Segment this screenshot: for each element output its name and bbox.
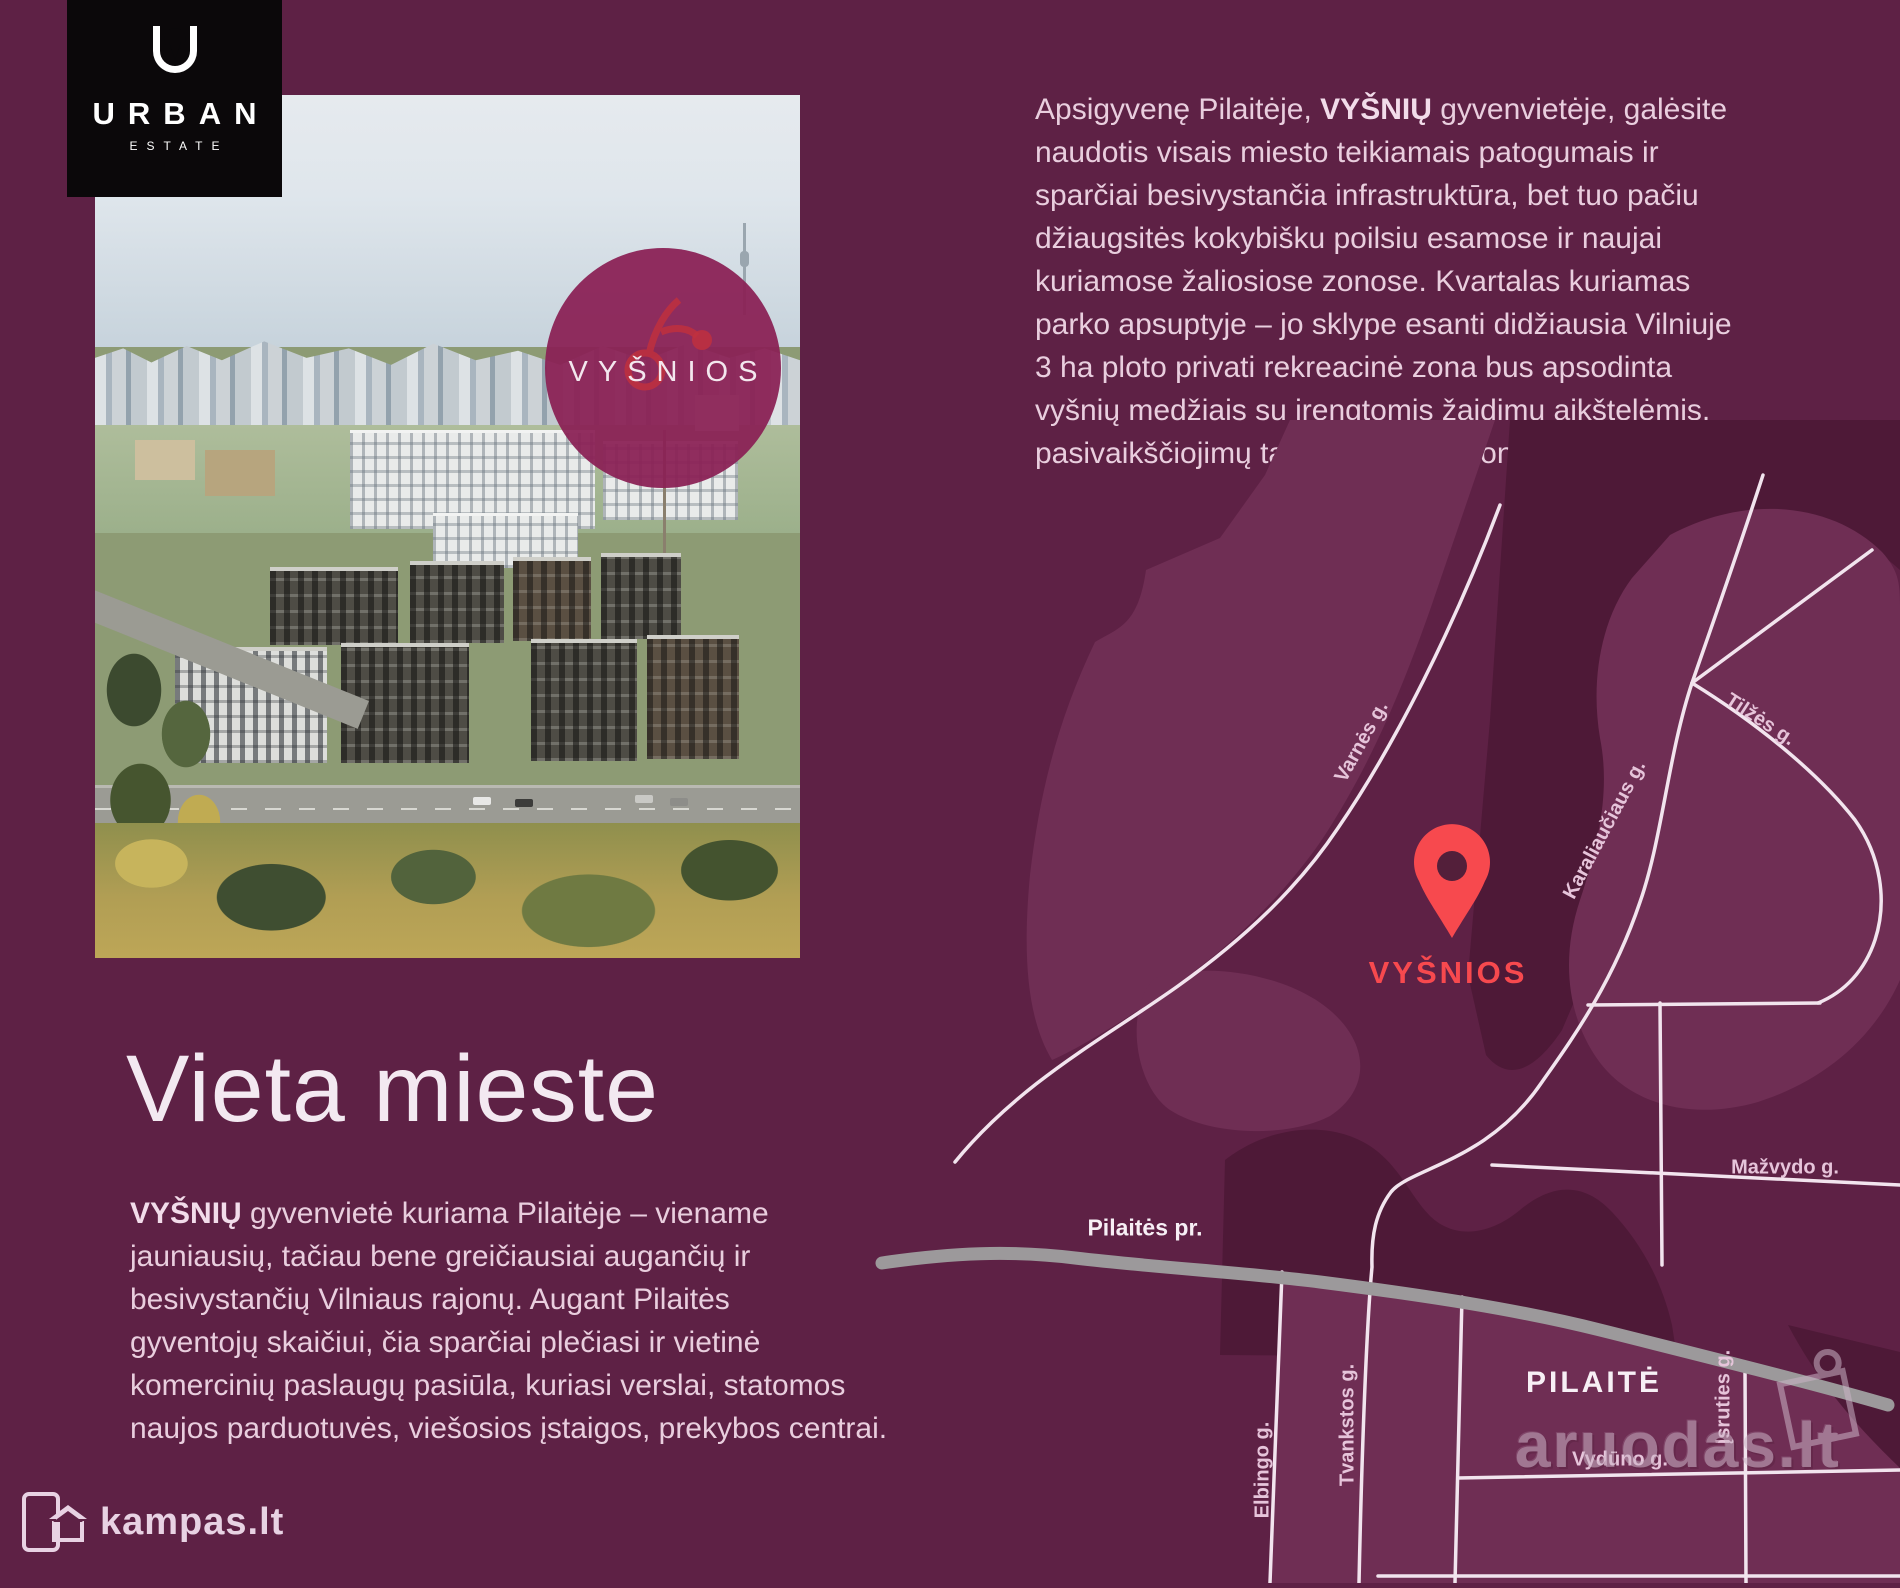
logo-line1: URBAN xyxy=(93,96,270,132)
street-label-tvankstos: Tvankstos g. xyxy=(1337,1364,1360,1486)
logo-line2: ESTATE xyxy=(130,139,229,153)
aruodas-watermark[interactable]: aruodas.lt xyxy=(1515,1408,1841,1482)
street-label-elbingo: Elbingo g. xyxy=(1252,1422,1275,1519)
kampas-house-icon xyxy=(52,1521,84,1542)
quarter-building xyxy=(410,561,504,643)
quarter-building xyxy=(531,639,637,761)
street-label-mazvydo: Mažvydo g. xyxy=(1731,1157,1839,1180)
district-label: PILAITĖ xyxy=(1526,1366,1662,1400)
car xyxy=(515,799,533,807)
intro-line1-bold: VYŠNIŲ xyxy=(1320,93,1432,126)
street-label-pilaites-pr: Pilaitės pr. xyxy=(1087,1215,1202,1242)
photo-meadow xyxy=(95,823,800,958)
location-paragraph: VYŠNIŲ gyvenvietė kuriama Pilaitėje – vi… xyxy=(130,1192,887,1450)
project-badge: VYŠNIOS xyxy=(545,248,781,488)
badge-title: VYŠNIOS xyxy=(545,356,781,389)
kampas-watermark-text: kampas.lt xyxy=(100,1501,284,1544)
photo-building xyxy=(135,440,195,480)
location-lines: jauniausių, tačiau bene greičiausiai aug… xyxy=(130,1240,887,1445)
keyhole-u-icon xyxy=(149,26,201,82)
map-area-park xyxy=(1137,971,1361,1132)
photo-building xyxy=(205,450,275,496)
quarter-building xyxy=(270,567,398,645)
car xyxy=(635,795,653,803)
kampas-watermark[interactable]: kampas.lt xyxy=(22,1492,284,1552)
intro-paragraph: Apsigyvenę Pilaitėje, VYŠNIŲ gyvenvietėj… xyxy=(1035,88,1732,475)
quarter-building xyxy=(513,557,591,641)
photo-trees xyxy=(95,635,225,855)
section-heading: Vieta mieste xyxy=(126,1035,659,1144)
map-pin-caption: VYŠNIOS xyxy=(1369,955,1528,991)
intro-line1-post: gyvenvietėje, galėsite xyxy=(1432,93,1727,126)
aerial-photo: VYŠNIOS xyxy=(95,95,800,958)
aruodas-house-icon xyxy=(1776,1367,1859,1450)
urban-estate-logo: URBAN ESTATE xyxy=(67,0,282,197)
location-line1-bold: VYŠNIŲ xyxy=(130,1197,242,1230)
car xyxy=(473,797,491,805)
car xyxy=(670,798,688,806)
location-line1-post: gyvenvietė kuriama Pilaitėje – viename xyxy=(242,1197,769,1230)
quarter-building xyxy=(601,553,681,639)
intro-line1-pre: Apsigyvenę Pilaitėje, xyxy=(1035,93,1320,126)
